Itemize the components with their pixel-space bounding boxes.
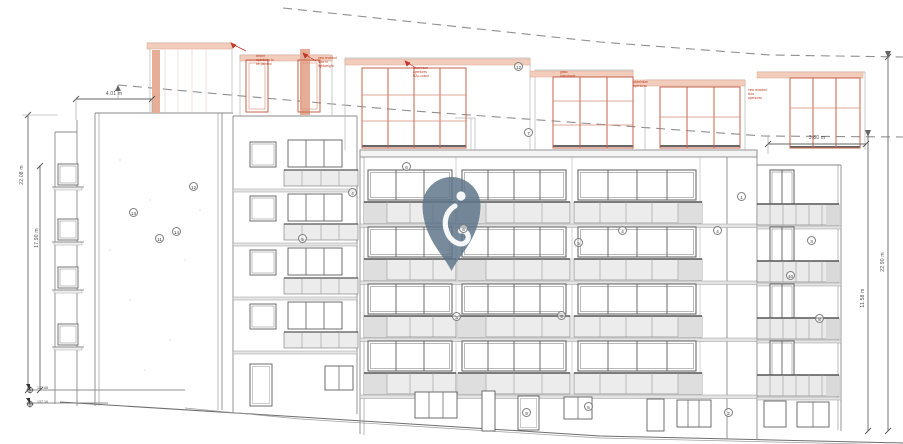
dim-label-right-inner: 11.58 m — [860, 278, 866, 318]
red-note: aluminium apertures — [633, 80, 659, 88]
elevation-sheet: 4.01 m 3.80 m 22.08 m 17.90 m 22.90 m 11… — [0, 0, 903, 444]
ref-tag: 1 — [737, 192, 746, 201]
dim-label-top-left: 4.01 m — [96, 91, 132, 97]
ref-tag: 3 — [807, 236, 816, 245]
ref-tag: 8 — [815, 314, 824, 323]
ref-tag: 10 — [786, 271, 795, 280]
mid-block-ground — [250, 364, 353, 406]
dim-label-right-outer: 22.90 m — [880, 242, 886, 282]
ref-tag: 12 — [189, 182, 198, 191]
ref-tag: 6 — [459, 224, 468, 233]
terrace-parapet-lines — [362, 146, 860, 147]
ref-tag: 3 — [452, 312, 461, 321]
ref-tag: 7 — [524, 128, 533, 137]
ref-tag: 12 — [514, 62, 523, 71]
mid-block-floors — [233, 140, 358, 354]
dim-label-left-outer: 22.08 m — [19, 155, 25, 195]
elevation-drawing — [0, 0, 903, 444]
ref-tag: 9 — [557, 311, 566, 320]
receded-floor-fascias — [147, 43, 863, 115]
ref-tag: 9 — [522, 408, 531, 417]
ref-tag: 13 — [129, 208, 138, 217]
ref-tag: 4 — [618, 226, 627, 235]
ref-tag: 5 — [584, 402, 593, 411]
ref-tag: 4 — [713, 226, 722, 235]
ref-tag: 14 — [172, 227, 181, 236]
right-block-ground — [764, 401, 829, 427]
dim-label-top-right: 3.80 m — [799, 135, 835, 141]
red-note: new receded floor in lightweight — [318, 56, 344, 68]
red-note: glass balustrade — [560, 70, 586, 78]
wall-texture-dots — [109, 159, 201, 371]
ref-tag: 5 — [298, 234, 307, 243]
ref-tag: 2 — [724, 408, 733, 417]
right-block-floors — [757, 170, 841, 400]
datum-markers — [26, 384, 34, 408]
ref-tag: 11 — [155, 234, 164, 243]
datum-level-upper: 137.68 — [37, 386, 48, 390]
main-block-floors — [360, 170, 757, 399]
dim-label-left-inner: 17.90 m — [34, 218, 40, 258]
ref-tag: 6 — [402, 162, 411, 171]
ref-tag: 5 — [574, 238, 583, 247]
red-note: timber apertures to be painted — [256, 54, 282, 66]
datum-level-lower: 137.16 — [37, 400, 48, 404]
left-wing — [55, 120, 77, 406]
ref-tag: 4 — [348, 188, 357, 197]
left-wing-windows — [52, 164, 84, 350]
party-wall — [95, 113, 233, 410]
red-note: new receded floor apertures — [748, 88, 774, 100]
red-note: aluminium apertures RAL colour — [413, 66, 439, 78]
